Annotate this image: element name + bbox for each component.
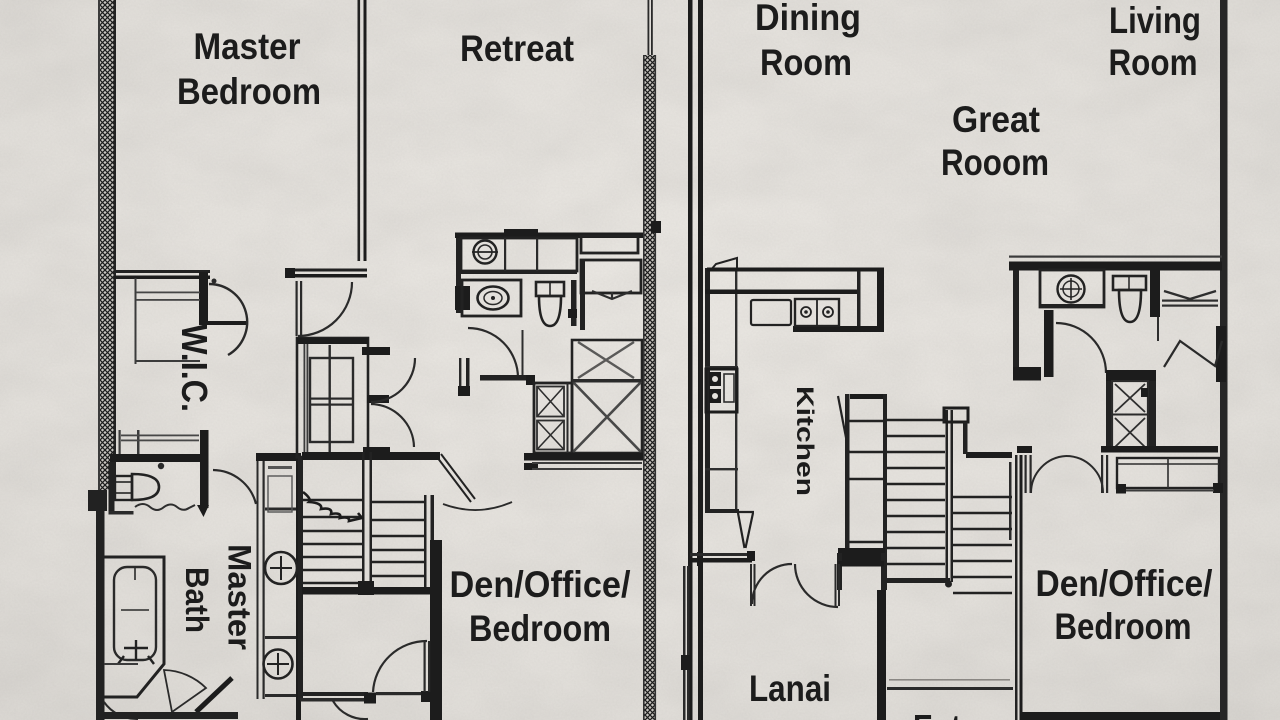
svg-text:Kitchen: Kitchen (791, 386, 818, 496)
svg-text:Master: Master (194, 26, 301, 67)
svg-text:Bath: Bath (179, 567, 215, 633)
svg-text:Entry: Entry (913, 707, 989, 720)
svg-text:Den/Office/: Den/Office/ (450, 564, 631, 605)
svg-text:Den/Office/: Den/Office/ (1036, 563, 1213, 604)
svg-text:Bedroom: Bedroom (469, 608, 611, 649)
svg-text:Great: Great (952, 99, 1040, 140)
svg-text:Room: Room (1109, 42, 1198, 83)
svg-text:Bedroom: Bedroom (177, 71, 321, 112)
svg-text:Rooom: Rooom (941, 142, 1049, 183)
svg-text:Lanai: Lanai (749, 668, 831, 709)
svg-text:Dining: Dining (755, 0, 861, 38)
svg-text:Living: Living (1109, 0, 1201, 41)
svg-text:Retreat: Retreat (460, 28, 574, 69)
svg-text:Master: Master (222, 544, 258, 650)
svg-text:Room: Room (760, 42, 852, 83)
svg-text:W.I.C.: W.I.C. (174, 324, 215, 412)
svg-text:Bedroom: Bedroom (1055, 606, 1192, 647)
